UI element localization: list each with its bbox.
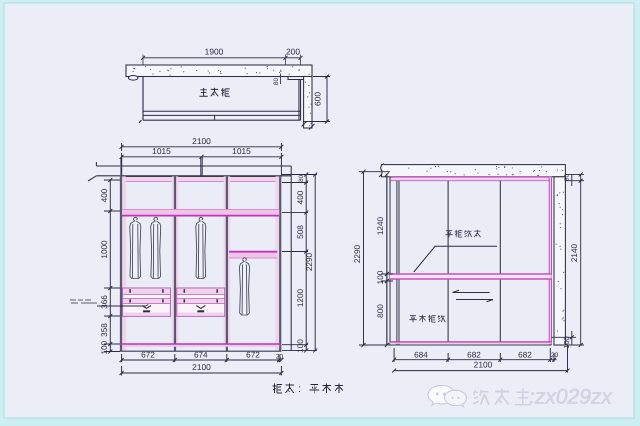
svg-text:20: 20 — [551, 352, 559, 359]
svg-text:80: 80 — [298, 174, 305, 181]
svg-text:1240: 1240 — [376, 216, 385, 235]
svg-text:684: 684 — [414, 350, 428, 359]
svg-text::zx029zx: :zx029zx — [529, 386, 613, 409]
svg-text:800: 800 — [376, 304, 385, 318]
svg-text:100: 100 — [562, 336, 571, 348]
svg-text:1900: 1900 — [205, 47, 224, 57]
svg-text:2100: 2100 — [192, 136, 211, 146]
svg-text:2140: 2140 — [570, 243, 579, 262]
svg-text:20: 20 — [276, 353, 284, 360]
svg-text:400: 400 — [296, 190, 305, 204]
svg-text:682: 682 — [467, 350, 481, 359]
svg-text:1015: 1015 — [152, 146, 171, 156]
svg-text:682: 682 — [518, 350, 532, 359]
svg-text:100: 100 — [100, 340, 109, 354]
svg-text:1200: 1200 — [296, 288, 305, 307]
svg-text:80: 80 — [273, 78, 280, 86]
svg-text:508: 508 — [296, 225, 305, 239]
svg-text:2100: 2100 — [192, 362, 211, 372]
svg-text:80: 80 — [564, 174, 571, 181]
svg-text:674: 674 — [194, 351, 208, 360]
svg-text:200: 200 — [286, 47, 300, 57]
svg-text:672: 672 — [141, 351, 155, 360]
svg-text:366: 366 — [100, 295, 109, 309]
svg-text:1000: 1000 — [100, 240, 109, 259]
svg-text:2290: 2290 — [305, 252, 314, 271]
svg-text:100: 100 — [376, 270, 385, 284]
svg-text:600: 600 — [313, 92, 323, 106]
svg-text:400: 400 — [100, 188, 109, 202]
svg-text:2100: 2100 — [474, 360, 493, 370]
svg-text:2290: 2290 — [353, 244, 362, 263]
svg-text:358: 358 — [100, 323, 109, 337]
svg-text:672: 672 — [246, 351, 260, 360]
svg-text:1015: 1015 — [232, 146, 251, 156]
svg-text:100: 100 — [296, 339, 305, 353]
